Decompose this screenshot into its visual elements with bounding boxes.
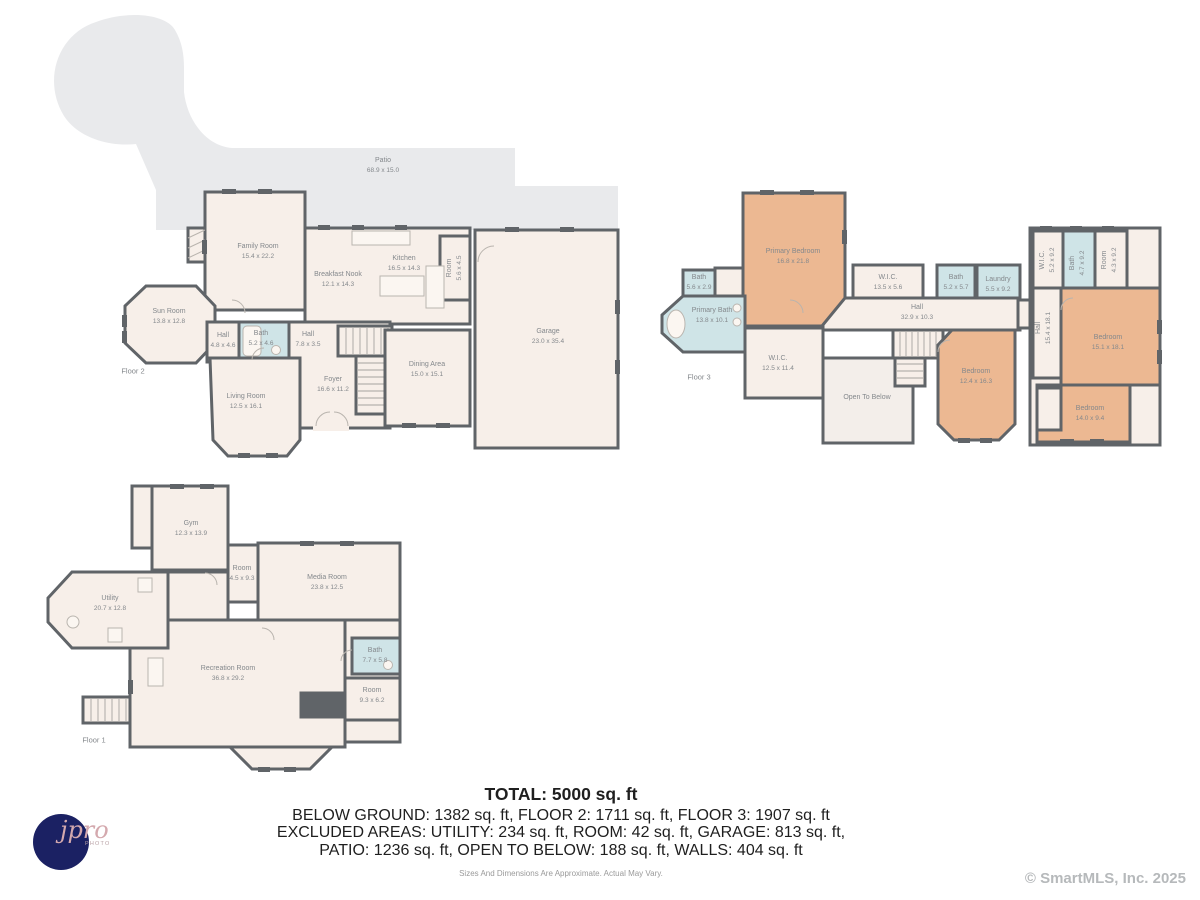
- room-label-bedroom-c: Bedroom14.0 x 9.4: [1076, 404, 1105, 424]
- summary-line-3: PATIO: 1236 sq. ft, OPEN TO BELOW: 188 s…: [0, 842, 1122, 860]
- room-label-kitchen: Kitchen16.5 x 14.3: [388, 254, 420, 274]
- room-label-room-d: Room9.3 x 6.2: [360, 686, 385, 706]
- room-label-hall-b: Hall7.8 x 3.5: [296, 330, 321, 350]
- summary-line-2: EXCLUDED AREAS: UTILITY: 234 sq. ft, ROO…: [0, 824, 1122, 842]
- kitchen-counter: [352, 231, 410, 245]
- room-label-recreation-room: Recreation Room36.8 x 29.2: [201, 664, 255, 684]
- floor-plan-drawing: [0, 0, 1200, 900]
- room-label-wic-b: W.I.C.12.5 x 11.4: [762, 354, 794, 374]
- room-label-foyer: Foyer16.6 x 11.2: [317, 375, 349, 395]
- room-label-bath-small: Bath5.6 x 2.9: [687, 273, 712, 293]
- hall-lower: [168, 572, 228, 620]
- area-summary: TOTAL: 5000 sq. ft BELOW GROUND: 1382 sq…: [0, 786, 1122, 878]
- recreation-structure: [148, 658, 163, 686]
- room-label-wic-a: W.I.C.13.5 x 5.6: [874, 273, 903, 293]
- room-label-room-c: Room4.5 x 9.3: [230, 564, 255, 584]
- room-label-bath-b: Bath5.2 x 5.7: [944, 273, 969, 293]
- stairs-f1: [83, 697, 130, 723]
- room-label-patio: Patio68.9 x 15.0: [367, 156, 399, 176]
- room-label-pantry: Room5.6 x 4.5: [445, 256, 465, 281]
- room-label-family-room: Family Room15.4 x 22.2: [237, 242, 278, 262]
- room-label-garage: Garage23.0 x 35.4: [532, 327, 564, 347]
- room-label-hall-a: Hall4.8 x 4.6: [211, 331, 236, 351]
- disclaimer-text: Sizes And Dimensions Are Approximate. Ac…: [0, 869, 1122, 878]
- kitchen-island: [380, 276, 424, 296]
- floor-plan-page: Patio68.9 x 15.0 Family Room15.4 x 22.2 …: [0, 0, 1200, 900]
- room-label-open-to-below: Open To Below: [843, 393, 890, 403]
- room-label-dining-area: Dining Area15.0 x 15.1: [409, 360, 445, 380]
- chimney-mass: [300, 692, 344, 718]
- primary-sink-1: [733, 304, 741, 312]
- smartmls-copyright: © SmartMLS, Inc. 2025: [1025, 870, 1186, 887]
- total-area-text: TOTAL: 5000 sq. ft: [0, 786, 1122, 804]
- room-label-bath-c: Bath4.7 x 9.2: [1068, 251, 1088, 276]
- room-label-breakfast-nook: Breakfast Nook12.1 x 14.3: [314, 270, 362, 290]
- floor-3-label: Floor 3: [687, 373, 710, 382]
- utility-equipment-1: [138, 578, 152, 592]
- room-label-gym: Gym12.3 x 13.9: [175, 519, 207, 539]
- stairs-f3-lower: [895, 358, 925, 386]
- room-label-hall-d: Hall15.4 x 18.1: [1034, 312, 1054, 344]
- room-label-sun-room: Sun Room13.8 x 12.8: [152, 307, 185, 327]
- left-wing: [132, 486, 152, 548]
- patio-shape: [54, 15, 618, 230]
- room-label-laundry: Laundry5.5 x 9.2: [985, 275, 1010, 295]
- logo-script-text: jpro: [60, 816, 109, 844]
- utility-equipment-2: [108, 628, 122, 642]
- kitchen-counter-right: [426, 266, 444, 308]
- room-label-bath-d: Bath7.7 x 5.8: [363, 646, 388, 666]
- summary-line-1: BELOW GROUND: 1382 sq. ft, FLOOR 2: 1711…: [0, 807, 1122, 825]
- closet-primary: [715, 268, 743, 296]
- room-label-bedroom-a: Bedroom12.4 x 16.3: [960, 367, 992, 387]
- room-label-hall-c: Hall32.9 x 10.3: [901, 303, 933, 323]
- primary-sink-2: [733, 318, 741, 326]
- room-label-utility: Utility20.7 x 12.8: [94, 594, 126, 614]
- room-label-bath-a: Bath5.2 x 4.6: [249, 329, 274, 349]
- room-label-primary-bedroom: Primary Bedroom16.8 x 21.8: [766, 247, 820, 267]
- room-label-living-room: Living Room12.5 x 16.1: [227, 392, 266, 412]
- closet-bedroom-c: [1037, 388, 1061, 430]
- recreation-bay: [230, 747, 332, 769]
- floorplan-floor-1: [48, 484, 400, 772]
- room-label-primary-bath: Primary Bath13.8 x 10.1: [692, 306, 732, 326]
- primary-tub: [667, 310, 685, 338]
- room-label-wic-c: W.I.C.5.2 x 9.2: [1038, 248, 1058, 273]
- utility-tank: [67, 616, 79, 628]
- floor-1-label: Floor 1: [82, 736, 105, 745]
- logo-sub-text: PHOTO: [85, 841, 110, 847]
- room-label-media-room: Media Room23.8 x 12.5: [307, 573, 347, 593]
- floor-2-label: Floor 2: [121, 367, 144, 376]
- room-label-room-b: Room4.3 x 9.2: [1100, 248, 1120, 273]
- room-label-bedroom-b: Bedroom15.1 x 18.1: [1092, 333, 1124, 353]
